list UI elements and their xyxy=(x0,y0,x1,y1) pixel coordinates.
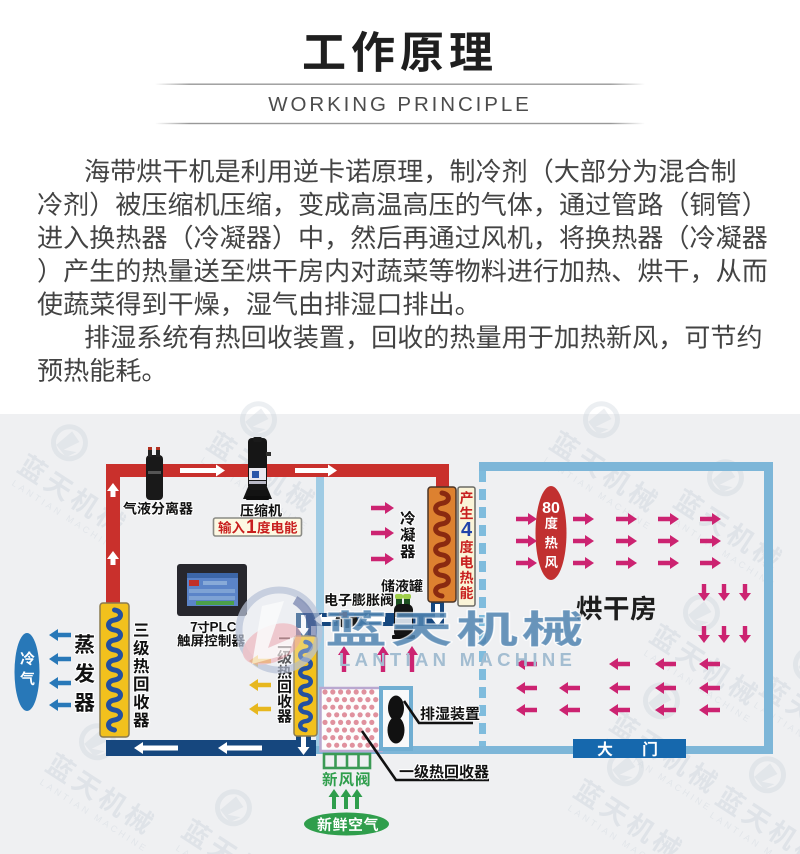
svg-text:1: 1 xyxy=(246,517,257,538)
svg-text:LANTIAN MACHINE: LANTIAN MACHINE xyxy=(339,649,576,670)
svg-text:4: 4 xyxy=(461,519,473,541)
svg-text:WORKING PRINCIPLE: WORKING PRINCIPLE xyxy=(268,93,531,116)
svg-text:PLC: PLC xyxy=(210,620,237,635)
svg-text:80: 80 xyxy=(542,500,560,517)
